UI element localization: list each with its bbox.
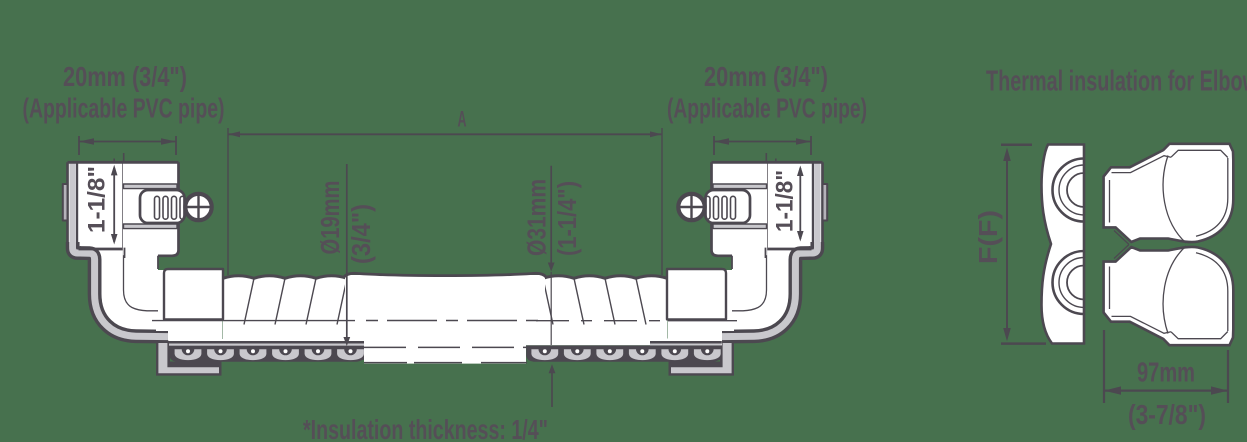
svg-text:Ø19mm: Ø19mm: [315, 181, 345, 255]
svg-text:(Applicable PVC pipe): (Applicable PVC pipe): [667, 93, 867, 124]
svg-text:Ø31mm: Ø31mm: [522, 179, 552, 256]
svg-text:(3-7/8"): (3-7/8"): [1128, 399, 1206, 430]
svg-text:1-1/8": 1-1/8": [772, 170, 799, 232]
svg-text:F(F): F(F): [973, 210, 1003, 264]
svg-text:(Applicable PVC pipe): (Applicable PVC pipe): [23, 93, 225, 124]
svg-text:97mm: 97mm: [1137, 357, 1195, 388]
svg-text:A: A: [458, 107, 467, 132]
svg-text:20mm (3/4"): 20mm (3/4"): [704, 61, 828, 92]
svg-text:20mm (3/4"): 20mm (3/4"): [63, 61, 187, 92]
svg-text:(1-1/4"): (1-1/4"): [552, 181, 582, 256]
svg-text:1-1/8": 1-1/8": [84, 166, 111, 233]
svg-text:*Insulation thickness: 1/4": *Insulation thickness: 1/4": [303, 414, 548, 442]
svg-text:Thermal insulation for Elbow: Thermal insulation for Elbow: [986, 66, 1247, 98]
svg-text:(3/4"): (3/4"): [346, 204, 376, 264]
